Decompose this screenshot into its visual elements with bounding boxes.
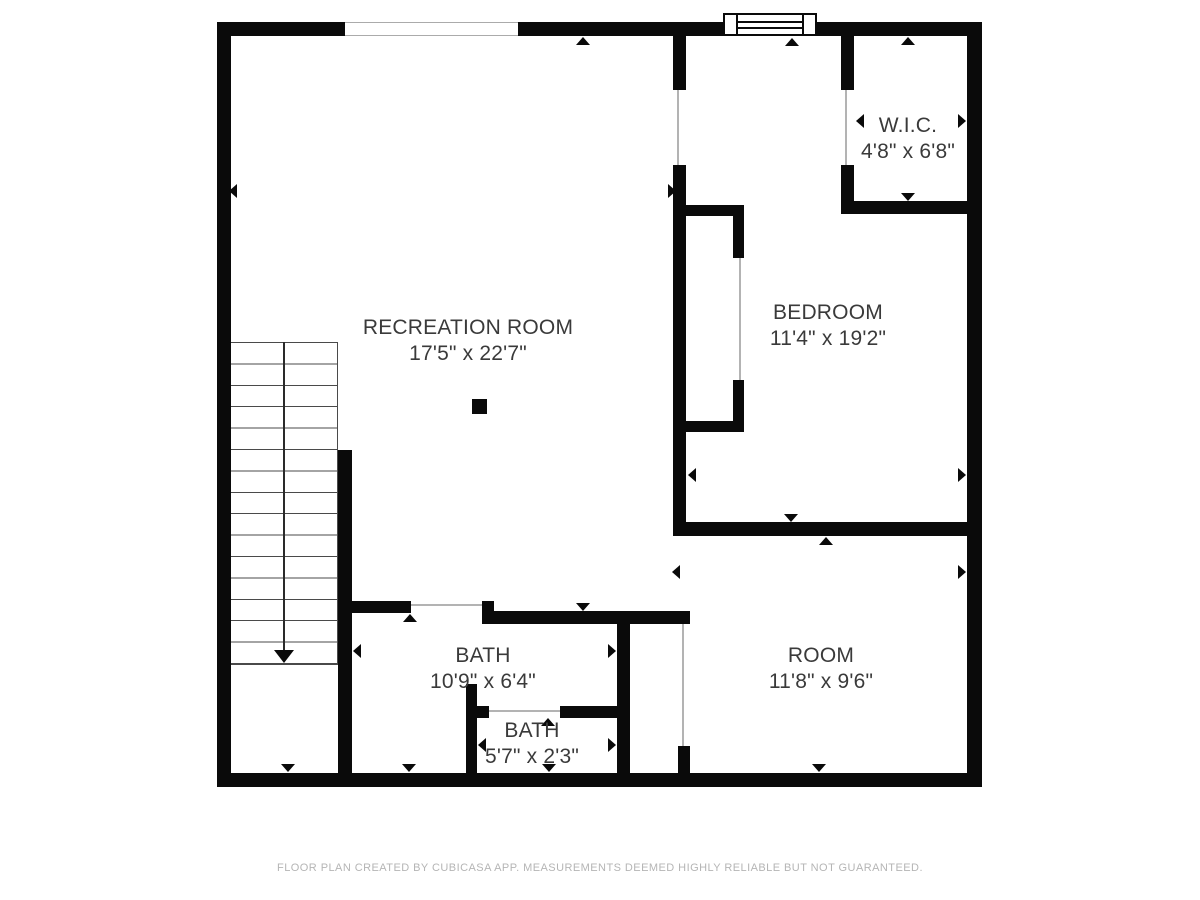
wall-bedroom-divider-top: [673, 36, 686, 90]
wall-bath-top-step: [482, 601, 494, 624]
wall-closet-right-lower: [733, 380, 744, 421]
door-opening-wic: [845, 90, 847, 165]
measure-arrow-icon: [402, 764, 416, 772]
wall-closet-bottom: [686, 421, 744, 432]
measure-arrow-icon: [608, 644, 616, 658]
floor-plan-canvas: RECREATION ROOM 17'5" x 22'7" BEDROOM 11…: [0, 0, 1200, 900]
window-glass-line-icon: [737, 21, 803, 23]
room-label-bath-small: BATH 5'7" x 2'3": [485, 718, 579, 770]
measure-arrow-icon: [672, 565, 680, 579]
support-column: [472, 399, 487, 414]
door-opening-bath: [411, 604, 482, 606]
wall-bath2-divider-stub: [477, 706, 489, 718]
stairs-down-arrow-icon: [274, 650, 294, 663]
measure-arrow-icon: [819, 537, 833, 545]
measure-arrow-icon: [958, 114, 966, 128]
room-dimensions: 5'7" x 2'3": [485, 744, 579, 770]
window-opening-icon: [345, 22, 518, 36]
measure-arrow-icon: [608, 738, 616, 752]
measure-arrow-icon: [812, 764, 826, 772]
wall-top-mid: [518, 22, 723, 36]
room-label-recreation-room: RECREATION ROOM 17'5" x 22'7": [363, 315, 573, 367]
room-dimensions: 11'4" x 19'2": [770, 326, 886, 352]
room-dimensions: 10'9" x 6'4": [430, 669, 536, 695]
wall-bath2-divider: [560, 706, 630, 718]
room-label-bedroom: BEDROOM 11'4" x 19'2": [770, 300, 886, 352]
measure-arrow-icon: [668, 184, 676, 198]
room-label-bath-main: BATH 10'9" x 6'4": [430, 643, 536, 695]
room-name: ROOM: [769, 643, 873, 669]
wall-right: [967, 22, 982, 787]
measure-arrow-icon: [229, 184, 237, 198]
measure-arrow-icon: [958, 468, 966, 482]
wall-bottom: [217, 773, 982, 787]
measure-arrow-icon: [576, 37, 590, 45]
stairs-direction-line: [283, 342, 285, 652]
measure-arrow-icon: [785, 38, 799, 46]
window-mullion-icon: [802, 15, 804, 34]
room-name: BATH: [485, 718, 579, 744]
door-opening-room: [682, 624, 684, 746]
door-opening-closet: [739, 258, 741, 380]
room-name: BEDROOM: [770, 300, 886, 326]
measure-arrow-icon: [281, 764, 295, 772]
window-glass-line-icon: [737, 27, 803, 29]
measure-arrow-icon: [958, 565, 966, 579]
wall-closet-right-upper: [733, 216, 744, 258]
measure-arrow-icon: [688, 468, 696, 482]
wall-bath2-left: [466, 684, 477, 773]
measure-arrow-icon: [403, 614, 417, 622]
room-name: RECREATION ROOM: [363, 315, 573, 341]
room-dimensions: 11'8" x 9'6": [769, 669, 873, 695]
door-opening-bedroom: [677, 90, 679, 165]
wall-wic-bottom: [841, 201, 967, 214]
door-opening-bath2: [489, 710, 560, 712]
measure-arrow-icon: [784, 514, 798, 522]
room-label-room: ROOM 11'8" x 9'6": [769, 643, 873, 695]
wall-closet-top: [686, 205, 744, 216]
footer-disclaimer: FLOOR PLAN CREATED BY CUBICASA APP. MEAS…: [277, 862, 923, 874]
room-name: BATH: [430, 643, 536, 669]
window-icon: [723, 13, 817, 36]
wall-bedroom-bottom: [673, 522, 982, 536]
room-label-wic: W.I.C. 4'8" x 6'8": [861, 113, 955, 165]
room-name: W.I.C.: [861, 113, 955, 139]
wall-bedroom-divider-main: [673, 165, 686, 522]
room-dimensions: 4'8" x 6'8": [861, 139, 955, 165]
wall-room-left-stub: [678, 746, 690, 773]
measure-arrow-icon: [353, 644, 361, 658]
wall-top-right: [817, 22, 982, 36]
wall-stairs-right: [338, 450, 352, 773]
wall-left: [217, 22, 231, 787]
wall-top-left: [217, 22, 345, 36]
wall-bath-top-right: [494, 611, 690, 624]
measure-arrow-icon: [901, 37, 915, 45]
wall-bath-room-divider: [617, 611, 630, 773]
measure-arrow-icon: [901, 193, 915, 201]
window-mullion-icon: [736, 15, 738, 34]
room-dimensions: 17'5" x 22'7": [363, 341, 573, 367]
wall-wic-left-upper: [841, 36, 854, 90]
measure-arrow-icon: [576, 603, 590, 611]
